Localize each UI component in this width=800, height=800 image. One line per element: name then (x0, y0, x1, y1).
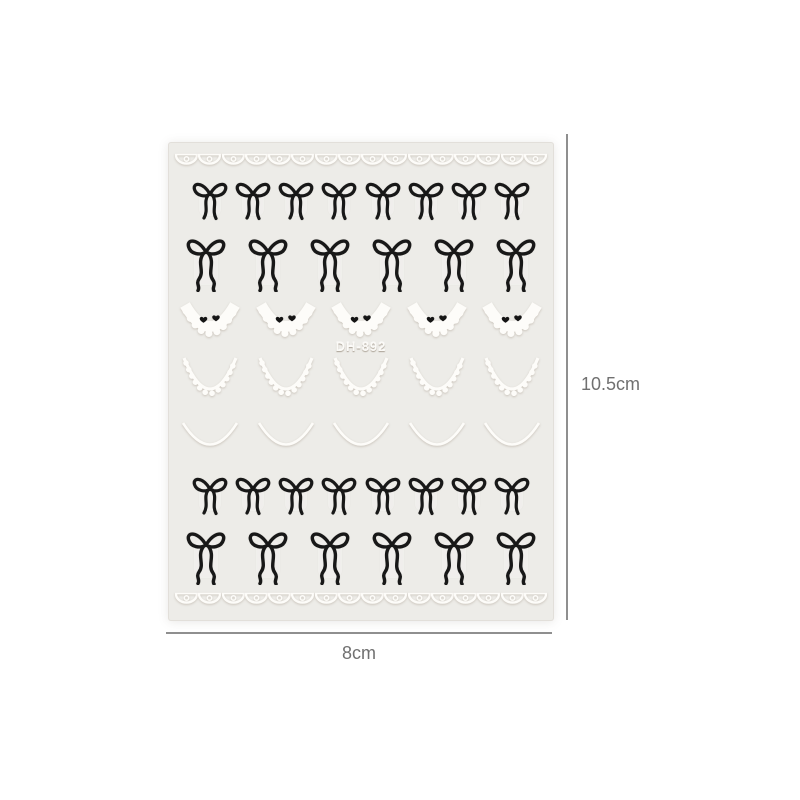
width-dimension-label: 8cm (166, 643, 552, 664)
white-thin-smile-curve-icon (406, 420, 468, 460)
lace-border-bottom (168, 590, 554, 608)
white-lace-scallop-icon (315, 151, 338, 169)
black-bow-small-icon (319, 177, 359, 223)
white-lace-scallop-icon (338, 151, 361, 169)
white-lace-scallop-icon (384, 590, 407, 608)
white-lace-scallop-icon (408, 151, 431, 169)
white-thin-smile-curve-icon (330, 420, 392, 460)
black-bow-long-tails-icon (493, 234, 539, 292)
black-bow-long-tails-icon (245, 234, 291, 292)
black-bow-small-icon (319, 472, 359, 518)
black-bow-small-icon (492, 472, 532, 518)
black-bow-long-tails-icon (245, 527, 291, 585)
white-lace-scalloped-arc-icon (406, 352, 468, 418)
black-bow-small-icon (233, 472, 273, 518)
black-bow-small-icon (233, 177, 273, 223)
product-image: DH-892 10.5cm 8cm (0, 0, 800, 800)
sticker-sheet: DH-892 (168, 142, 554, 621)
white-lace-scallop-icon (245, 590, 268, 608)
lace-border-top (168, 151, 554, 169)
white-lace-scallop-icon (361, 151, 384, 169)
white-lace-scallop-icon (245, 151, 268, 169)
black-bow-small-icon (406, 472, 446, 518)
white-lace-scallop-icon (384, 151, 407, 169)
white-lace-scalloped-arc-icon (179, 352, 241, 418)
white-lace-scallop-icon (291, 151, 314, 169)
black-bow-small-icon (492, 177, 532, 223)
black-bow-small-icon (363, 177, 403, 223)
white-lace-scallop-icon (501, 590, 524, 608)
black-bow-small-icon (276, 472, 316, 518)
black-bow-small-icon (406, 177, 446, 223)
black-bow-long-tails-icon (369, 234, 415, 292)
white-lace-scallop-icon (222, 151, 245, 169)
white-lace-scalloped-arc-icon (330, 352, 392, 418)
white-lace-scallop-icon (431, 151, 454, 169)
black-bow-small-icon (363, 472, 403, 518)
white-lace-scallop-icon (268, 590, 291, 608)
bow-row-long-bottom (168, 527, 554, 585)
black-bow-small-icon (190, 177, 230, 223)
white-lace-scallop-icon (454, 151, 477, 169)
width-dimension-line (166, 632, 552, 634)
white-thin-smile-curve-icon (255, 420, 317, 460)
black-bow-small-icon (449, 472, 489, 518)
bow-row-long-top (168, 234, 554, 290)
bow-row-small-bottom (168, 472, 554, 519)
white-lace-scallop-icon (338, 590, 361, 608)
black-bow-small-icon (449, 177, 489, 223)
black-bow-long-tails-icon (369, 527, 415, 585)
white-lace-scallop-icon (175, 590, 198, 608)
white-thin-smile-curve-icon (179, 420, 241, 460)
white-lace-scallop-icon (361, 590, 384, 608)
white-lace-scallop-icon (175, 151, 198, 169)
white-thin-smile-curve-icon (481, 420, 543, 460)
height-dimension-line (566, 134, 568, 620)
white-lace-scallop-icon (477, 151, 500, 169)
height-dimension-label: 10.5cm (581, 374, 640, 395)
black-bow-small-icon (190, 472, 230, 518)
white-lace-scallop-icon (291, 590, 314, 608)
white-lace-scallop-icon (198, 151, 221, 169)
black-bow-long-tails-icon (493, 527, 539, 585)
white-lace-scallop-icon (454, 590, 477, 608)
white-lace-scallop-icon (501, 151, 524, 169)
white-lace-scallop-icon (524, 590, 547, 608)
black-bow-long-tails-icon (183, 527, 229, 585)
white-lace-scallop-icon (408, 590, 431, 608)
white-lace-scallop-icon (431, 590, 454, 608)
white-lace-scallop-icon (477, 590, 500, 608)
white-lace-scalloped-arc-icon (481, 352, 543, 418)
white-lace-scalloped-arc-icon (255, 352, 317, 418)
white-lace-scallop-icon (315, 590, 338, 608)
bow-row-small-top (168, 177, 554, 224)
thin-curve-row (168, 420, 554, 460)
lace-arc-row (168, 352, 554, 420)
black-bow-long-tails-icon (431, 234, 477, 292)
white-lace-scallop-icon (268, 151, 291, 169)
black-bow-long-tails-icon (307, 527, 353, 585)
black-bow-long-tails-icon (307, 234, 353, 292)
white-lace-scallop-icon (198, 590, 221, 608)
white-lace-scallop-icon (524, 151, 547, 169)
sheet-code: DH-892 (168, 339, 554, 354)
black-bow-small-icon (276, 177, 316, 223)
white-lace-scallop-icon (222, 590, 245, 608)
black-bow-long-tails-icon (183, 234, 229, 292)
black-bow-long-tails-icon (431, 527, 477, 585)
